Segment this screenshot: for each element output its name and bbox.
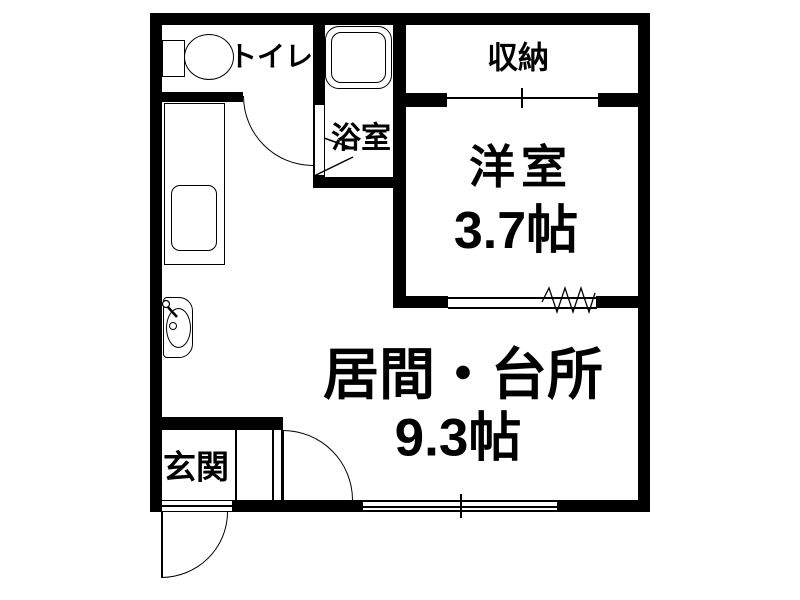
wall-bottom-left-segment <box>232 500 363 512</box>
room-label-entrance: 玄関 <box>163 451 229 484</box>
wall-entrance-top <box>162 417 283 430</box>
bath-door-jamb-right <box>324 105 326 176</box>
room-size-living-kitchen: 9.3帖 <box>395 412 522 465</box>
entrance-threshold <box>162 500 232 512</box>
wall-bath-bottom <box>313 177 405 188</box>
bathtub-inner-icon <box>331 32 386 83</box>
wall-storage-divider-left <box>393 93 447 107</box>
floorplan-canvas: トイレ 浴室 収納 洋室 3.7帖 居間・台所 9.3帖 玄関 <box>0 0 800 600</box>
window-center-tick <box>460 494 462 518</box>
wall-right <box>638 13 650 512</box>
wall-western-bottom-right <box>596 296 650 308</box>
wall-storage-divider-right <box>598 93 638 107</box>
wall-bottom-right-segment <box>557 500 650 512</box>
bath-door-jamb-left <box>313 105 315 176</box>
entrance-door-leaf <box>161 512 163 578</box>
wall-left <box>150 13 162 512</box>
wall-toilet-bottom <box>150 92 243 102</box>
toilet-tank-icon <box>162 40 185 77</box>
toilet-bowl-icon <box>184 34 234 80</box>
kitchen-sink-icon <box>171 185 217 251</box>
entrance-door-arc-icon <box>161 512 228 578</box>
room-label-western: 洋室 <box>463 144 573 190</box>
storage-door-tick <box>521 88 523 108</box>
wall-western-bottom-left <box>393 296 448 308</box>
bath-door-line-lower <box>314 157 353 176</box>
entrance-door-jamb <box>272 430 274 500</box>
room-label-living-kitchen: 居間・台所 <box>323 347 603 403</box>
room-label-toilet: トイレ <box>229 43 313 71</box>
western-opening-top-line <box>448 297 597 299</box>
entrance-step-line <box>235 430 237 500</box>
room-size-western: 3.7帖 <box>454 205 578 257</box>
entrance-inner-door-arc-icon <box>283 430 353 500</box>
wall-western-left <box>393 23 406 307</box>
toilet-door-arc-icon <box>243 96 313 166</box>
entrance-threshold-line <box>162 505 232 507</box>
wall-toilet-bath-divider <box>313 23 325 105</box>
wash-basin-drain-icon <box>169 322 177 330</box>
room-label-bath: 浴室 <box>331 124 391 154</box>
western-opening-bottom-line <box>448 307 597 309</box>
room-label-storage: 収納 <box>487 43 549 74</box>
